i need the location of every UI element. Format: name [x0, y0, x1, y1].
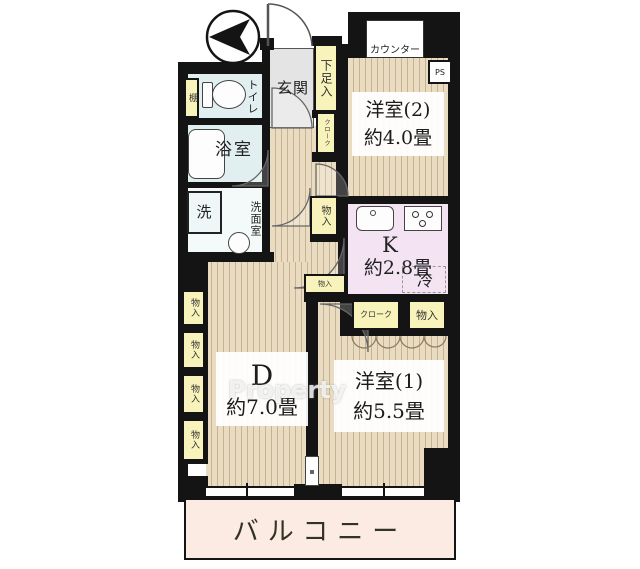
wall-entrance-top-left — [260, 38, 274, 50]
balcony-door-niche — [305, 456, 319, 486]
burner-2 — [426, 211, 433, 218]
storage-label-1: 物入 — [189, 298, 198, 318]
western2-area: 約4.0畳 — [364, 124, 432, 153]
small-closet-label: 物入 — [318, 281, 332, 288]
watermark: Property — [228, 376, 378, 406]
storage-box-3: 物入 — [182, 374, 205, 414]
counter-label: カウンター — [370, 41, 420, 57]
storage-box-4: 物入 — [182, 419, 205, 461]
wall-sanitary-bottom — [178, 252, 274, 262]
entrance-label: 玄関 — [272, 76, 314, 98]
door-handle-dot — [310, 470, 314, 474]
storage-label-3: 物入 — [189, 384, 198, 404]
storage-label-4: 物入 — [189, 430, 198, 450]
wall-right-outer — [448, 12, 460, 502]
cloak-strip-label: クローク — [323, 119, 329, 147]
faucet-dot — [370, 210, 376, 216]
storage-box-2: 物入 — [182, 331, 205, 369]
storage-box-1: 物入 — [182, 290, 205, 326]
kitchen-sink-icon — [356, 206, 394, 231]
kitchen-counter-band — [348, 196, 448, 204]
fridge-label: 冷 — [410, 268, 440, 290]
wall-bath-bottom — [184, 182, 264, 188]
balcony: バルコニー — [184, 498, 456, 560]
cloak-strip-box: クローク — [316, 112, 336, 154]
stove-icon — [404, 206, 442, 231]
entrance-door-arc — [268, 4, 312, 46]
shoe-cabinet-box: 下足入 — [314, 44, 338, 112]
floor-plan: 棚 下足入 クローク 物入 物入 物入 物入 物入 物入 クローク 物入 PS … — [0, 0, 640, 569]
washroom-label: 洗面室 — [248, 190, 262, 248]
western2-labelbox: 洋室(2) 約4.0畳 — [352, 92, 444, 156]
wall-sanitary-right — [262, 44, 270, 262]
shelf-label: 棚 — [187, 93, 196, 103]
window-dining — [206, 486, 294, 498]
pipe-space-label: PS — [435, 68, 445, 77]
wall-counter-left-block — [348, 20, 366, 58]
wall-counter-right-block — [424, 20, 450, 58]
counter-bay: カウンター — [366, 20, 424, 58]
shoe-cabinet-label: 下足入 — [320, 59, 332, 98]
washer-label: 洗 — [189, 200, 219, 222]
wall-toilet-bottom — [184, 118, 264, 125]
shelf-box: 棚 — [184, 78, 199, 118]
hall-closet-label: 物入 — [319, 205, 329, 227]
western1-cloak-box: クローク — [352, 300, 400, 330]
western1-cloak-label: クローク — [360, 311, 392, 319]
balcony-label: バルコニー — [233, 511, 407, 548]
western1-closet-box: 物入 — [408, 300, 446, 330]
storage-label-2: 物入 — [189, 340, 198, 360]
small-closet-box: 物入 — [304, 274, 346, 294]
hall-closet-box: 物入 — [310, 196, 338, 236]
western2-name: 洋室(2) — [366, 96, 431, 125]
pipe-space-box: PS — [428, 60, 452, 84]
bathroom-label: 浴室 — [206, 136, 262, 158]
burner-3 — [419, 220, 426, 227]
pillar-bottom-right — [424, 448, 460, 502]
toilet-label: トイレ — [244, 76, 260, 118]
toilet-bowl-icon — [212, 80, 246, 109]
western1-closet-label: 物入 — [416, 310, 438, 321]
burner-1 — [412, 211, 419, 218]
compass-icon — [204, 8, 262, 66]
